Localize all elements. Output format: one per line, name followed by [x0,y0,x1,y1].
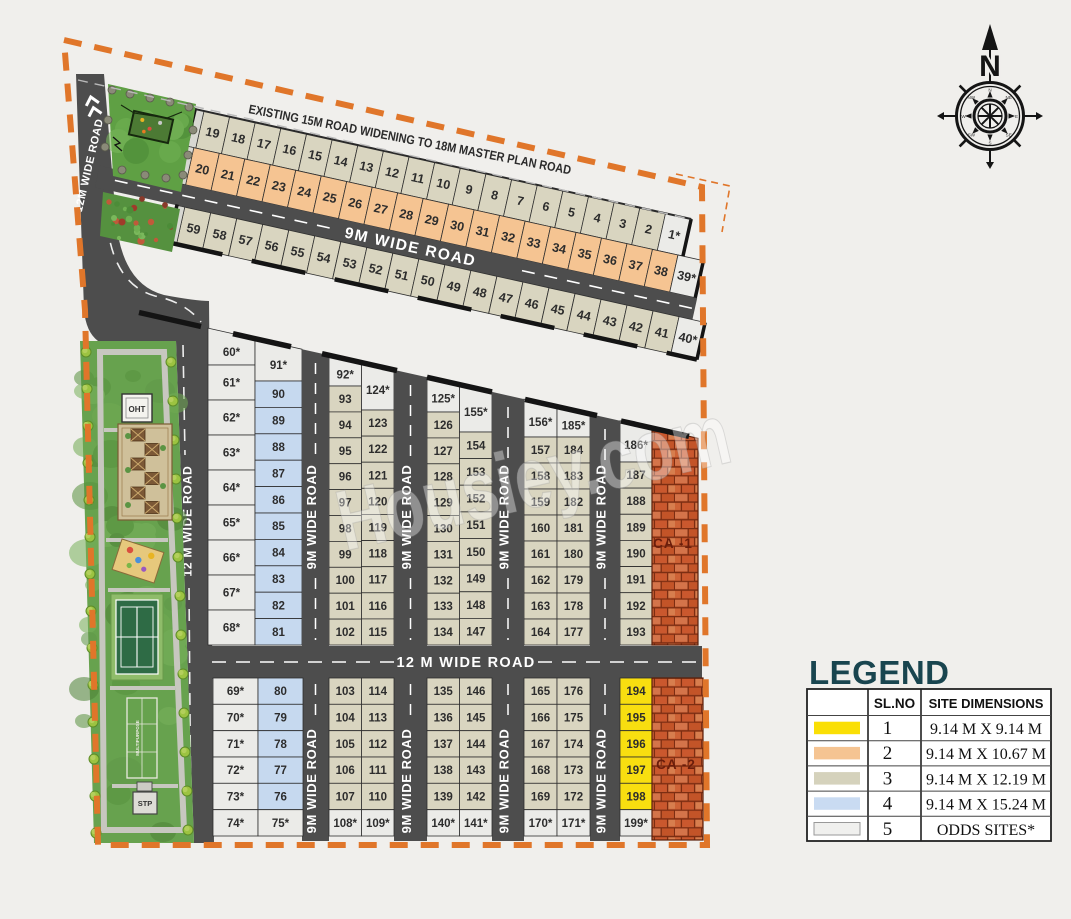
svg-text:164: 164 [531,627,551,639]
svg-text:OHT: OHT [129,405,146,414]
svg-text:189: 189 [626,522,645,534]
svg-text:114: 114 [369,686,388,698]
svg-text:61*: 61* [223,378,241,390]
svg-text:179: 179 [564,575,583,587]
svg-text:W: W [961,114,966,119]
svg-text:64*: 64* [223,483,241,495]
svg-text:109*: 109* [366,818,390,830]
svg-text:68*: 68* [223,623,241,635]
svg-text:122: 122 [368,444,387,456]
svg-text:89: 89 [272,416,285,428]
svg-text:106: 106 [336,765,355,777]
svg-text:105: 105 [336,739,356,751]
svg-text:9.14 M X 9.14 M: 9.14 M X 9.14 M [930,721,1042,738]
svg-text:CA -1: CA -1 [653,536,693,551]
svg-text:1: 1 [883,718,893,739]
svg-text:165: 165 [531,686,551,698]
svg-text:107: 107 [336,792,355,804]
svg-text:141*: 141* [464,818,488,830]
svg-text:77: 77 [274,765,287,777]
svg-text:140*: 140* [431,818,455,830]
svg-text:124*: 124* [366,385,390,397]
svg-text:198: 198 [626,792,646,804]
svg-text:117: 117 [369,575,388,587]
svg-text:2: 2 [883,743,893,764]
svg-text:SW: SW [968,133,976,138]
svg-text:171*: 171* [562,818,586,830]
svg-text:113: 113 [369,713,388,725]
svg-text:131: 131 [434,549,454,561]
svg-text:149: 149 [466,573,485,585]
svg-text:3: 3 [883,768,893,789]
svg-text:12 M WIDE ROAD: 12 M WIDE ROAD [396,655,535,671]
svg-text:102: 102 [336,627,355,639]
svg-text:190: 190 [626,549,645,561]
svg-text:101: 101 [336,601,356,613]
svg-text:110: 110 [369,792,388,804]
svg-text:173: 173 [564,765,583,777]
svg-text:91*: 91* [270,360,288,372]
svg-text:133: 133 [434,601,453,613]
svg-text:74*: 74* [227,818,245,830]
svg-text:9.14 M X 12.19 M: 9.14 M X 12.19 M [926,771,1046,788]
svg-text:146: 146 [466,686,485,698]
svg-text:163: 163 [531,601,550,613]
svg-text:MULTIPURPOSE: MULTIPURPOSE [135,720,140,755]
svg-text:80: 80 [274,686,287,698]
svg-text:9M WIDE ROAD: 9M WIDE ROAD [304,729,319,834]
svg-text:94: 94 [339,420,352,432]
svg-text:CA -2: CA -2 [656,757,696,772]
svg-text:90: 90 [272,389,285,401]
svg-text:155*: 155* [464,407,488,419]
svg-text:136: 136 [434,713,453,725]
svg-text:81: 81 [272,627,285,639]
svg-text:69*: 69* [227,686,245,698]
svg-text:93: 93 [339,394,352,406]
svg-text:138: 138 [434,765,454,777]
svg-text:84: 84 [272,548,285,560]
svg-text:177: 177 [564,627,583,639]
svg-text:86: 86 [272,495,285,507]
svg-text:LEGEND: LEGEND [809,654,950,691]
svg-text:123: 123 [368,418,387,430]
svg-text:196: 196 [626,739,645,751]
svg-text:174: 174 [564,739,584,751]
svg-text:162: 162 [531,575,550,587]
svg-text:76: 76 [274,792,287,804]
svg-text:150: 150 [466,547,485,559]
svg-text:161: 161 [531,549,551,561]
svg-text:78: 78 [274,739,287,751]
svg-text:166: 166 [531,713,550,725]
svg-text:176: 176 [564,686,583,698]
svg-text:60*: 60* [223,347,241,359]
svg-text:194: 194 [626,686,646,698]
svg-text:142: 142 [466,792,485,804]
svg-text:135: 135 [434,686,454,698]
svg-text:65*: 65* [223,518,241,530]
svg-text:63*: 63* [223,448,241,460]
svg-text:169: 169 [531,792,550,804]
svg-text:103: 103 [336,686,355,698]
svg-text:N: N [988,87,991,92]
svg-text:9M WIDE ROAD: 9M WIDE ROAD [399,729,414,834]
svg-text:108*: 108* [333,818,357,830]
svg-text:71*: 71* [227,739,245,751]
svg-text:104: 104 [336,713,356,725]
svg-text:126: 126 [434,420,453,432]
svg-text:195: 195 [626,713,646,725]
svg-text:137: 137 [434,739,453,751]
svg-text:85: 85 [272,521,285,533]
svg-text:9M WIDE ROAD: 9M WIDE ROAD [497,729,512,834]
svg-text:175: 175 [564,713,584,725]
svg-text:112: 112 [369,739,388,751]
svg-text:NW: NW [967,95,975,100]
svg-text:168: 168 [531,765,551,777]
svg-text:87: 87 [272,468,285,480]
svg-text:4: 4 [883,794,893,815]
svg-text:181: 181 [564,523,584,535]
svg-text:66*: 66* [223,553,241,565]
svg-text:72*: 72* [227,765,245,777]
svg-text:132: 132 [434,575,453,587]
svg-text:192: 192 [626,601,645,613]
svg-text:5: 5 [883,819,893,840]
svg-text:148: 148 [466,600,486,612]
svg-text:70*: 70* [227,713,245,725]
svg-text:88: 88 [272,442,285,454]
svg-text:178: 178 [564,601,584,613]
svg-text:NE: NE [1006,95,1012,100]
svg-text:82: 82 [272,600,285,612]
svg-text:143: 143 [466,765,485,777]
svg-text:83: 83 [272,574,285,586]
svg-text:116: 116 [369,601,388,613]
svg-text:199*: 199* [624,818,648,830]
svg-text:172: 172 [564,792,583,804]
svg-text:SE: SE [1006,133,1012,138]
svg-text:115: 115 [369,627,388,639]
svg-text:147: 147 [466,627,485,639]
svg-text:SITE DIMENSIONS: SITE DIMENSIONS [929,696,1044,711]
svg-text:134: 134 [434,627,454,639]
svg-text:95: 95 [339,446,352,458]
svg-text:167: 167 [531,739,550,751]
svg-text:ODDS SITES*: ODDS SITES* [937,822,1035,839]
svg-text:9.14 M X 10.67 M: 9.14 M X 10.67 M [926,746,1046,763]
svg-text:191: 191 [626,575,646,587]
svg-text:145: 145 [466,713,486,725]
svg-text:67*: 67* [223,588,241,600]
svg-text:75*: 75* [272,818,290,830]
svg-text:170*: 170* [529,818,553,830]
svg-text:9.14 M X 15.24 M: 9.14 M X 15.24 M [926,797,1046,814]
svg-text:139: 139 [434,792,453,804]
svg-text:62*: 62* [223,413,241,425]
svg-text:9M WIDE ROAD: 9M WIDE ROAD [594,729,609,834]
svg-text:79: 79 [274,713,287,725]
svg-text:100: 100 [336,575,355,587]
svg-text:125*: 125* [431,393,455,405]
svg-text:180: 180 [564,549,583,561]
svg-text:92*: 92* [337,369,355,381]
svg-text:S: S [988,140,991,145]
svg-text:STP: STP [138,799,153,808]
svg-text:197: 197 [626,765,645,777]
svg-text:E: E [1015,114,1018,119]
svg-text:9M WIDE ROAD: 9M WIDE ROAD [304,465,319,570]
svg-text:193: 193 [626,627,645,639]
svg-text:144: 144 [466,739,486,751]
svg-text:N: N [979,50,1001,83]
svg-text:111: 111 [369,765,388,777]
svg-text:73*: 73* [227,792,245,804]
svg-text:SL.NO: SL.NO [874,696,915,711]
